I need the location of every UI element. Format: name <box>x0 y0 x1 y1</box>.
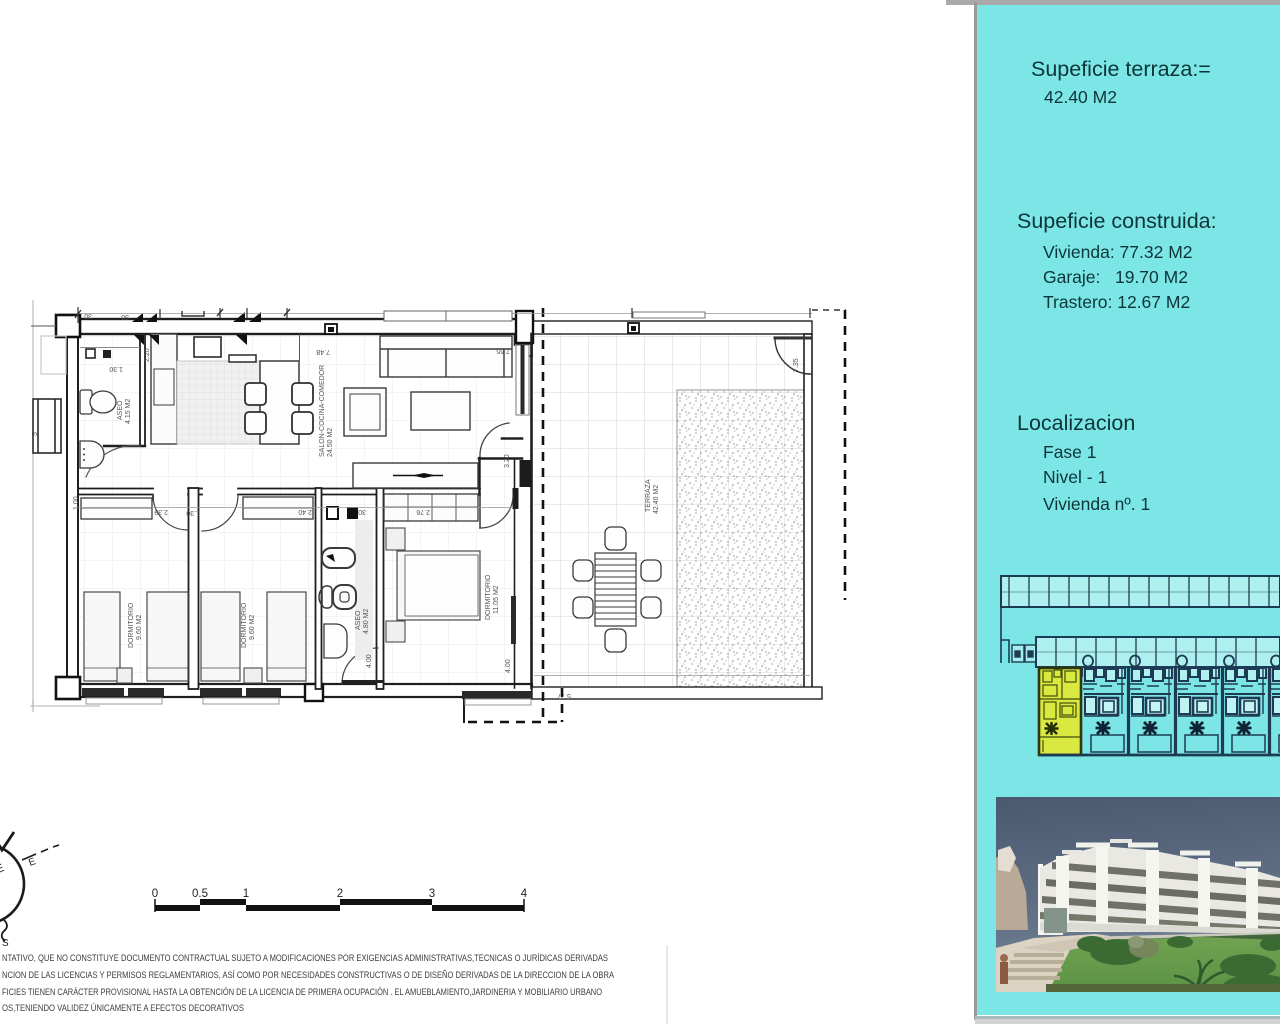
svg-text:2: 2 <box>337 888 343 900</box>
svg-text:7.65: 7.65 <box>496 347 510 354</box>
svg-text:42.40 M2: 42.40 M2 <box>653 485 660 514</box>
svg-text:2.40: 2.40 <box>298 508 312 515</box>
svg-text:4.80 M2: 4.80 M2 <box>363 609 370 634</box>
svg-text:Vivienda nº. 1: Vivienda nº. 1 <box>1043 494 1150 514</box>
svg-text:7.35: 7.35 <box>793 358 800 372</box>
svg-text:5: 5 <box>32 432 39 436</box>
svg-text:Fase 1: Fase 1 <box>1043 442 1097 462</box>
svg-text:DORMITORIO: DORMITORIO <box>128 602 135 648</box>
svg-text:11.05 M2: 11.05 M2 <box>493 585 500 614</box>
svg-text:Localizacion: Localizacion <box>1017 411 1135 435</box>
svg-text:1.00: 1.00 <box>73 496 80 510</box>
svg-text:9.60 M2: 9.60 M2 <box>249 615 256 640</box>
svg-text:DORMITORIO: DORMITORIO <box>241 602 248 648</box>
svg-text:Supeficie construida:: Supeficie construida: <box>1017 209 1217 233</box>
svg-text:FICIES TIENEN CARÁCTER PROVISI: FICIES TIENEN CARÁCTER PROVISIONAL HASTA… <box>2 987 602 998</box>
svg-text:5.77: 5.77 <box>557 692 571 699</box>
svg-text:Supeficie terraza:=: Supeficie terraza:= <box>1031 57 1211 81</box>
svg-text:4.15 M2: 4.15 M2 <box>125 399 132 424</box>
svg-text:42.40 M2: 42.40 M2 <box>1044 87 1117 107</box>
svg-text:Garaje: 19.70 M2: Garaje: 19.70 M2 <box>1043 267 1188 287</box>
svg-text:1: 1 <box>243 888 249 900</box>
svg-text:Trastero: 12.67 M2: Trastero: 12.67 M2 <box>1043 292 1190 312</box>
svg-text:ASEO: ASEO <box>117 400 124 420</box>
svg-text:2.20: 2.20 <box>144 348 151 362</box>
svg-text:24.50 M2: 24.50 M2 <box>327 428 334 457</box>
svg-text:OS,TENIENDO VALIDEZ ÚNICAMENTE: OS,TENIENDO VALIDEZ ÚNICAMENTE A EFECTOS… <box>2 1003 244 1014</box>
svg-text:2.76: 2.76 <box>416 508 430 515</box>
svg-text:TERRAZA: TERRAZA <box>645 479 652 512</box>
svg-text:9.60 M2: 9.60 M2 <box>136 615 143 640</box>
svg-text:3.20: 3.20 <box>504 454 511 468</box>
svg-text:ASEO: ASEO <box>355 610 362 630</box>
svg-text:SALON-COCINA-COMEDOR: SALON-COCINA-COMEDOR <box>319 365 326 457</box>
svg-text:30: 30 <box>121 313 129 320</box>
svg-text:NCION DE LAS LICENCIAS Y PERMI: NCION DE LAS LICENCIAS Y PERMISOS REGLAM… <box>2 970 614 981</box>
svg-text:S: S <box>2 938 9 949</box>
svg-text:4.00: 4.00 <box>366 654 373 668</box>
svg-text:4.00: 4.00 <box>505 659 512 673</box>
svg-text:1.30: 1.30 <box>109 365 123 372</box>
svg-text:30: 30 <box>358 508 366 515</box>
svg-text:Nivel - 1: Nivel - 1 <box>1043 467 1107 487</box>
svg-text:30: 30 <box>84 312 92 319</box>
svg-text:0.5: 0.5 <box>192 888 208 900</box>
svg-text:NTATIVO, QUE NO CONSTITUYE DOC: NTATIVO, QUE NO CONSTITUYE DOCUMENTO CON… <box>2 953 608 964</box>
svg-text:4: 4 <box>521 888 528 900</box>
svg-text:2.39: 2.39 <box>154 508 168 515</box>
svg-text:1.30: 1.30 <box>186 509 200 516</box>
svg-text:Vivienda: 77.32 M2: Vivienda: 77.32 M2 <box>1043 242 1193 262</box>
svg-text:3: 3 <box>429 888 435 900</box>
svg-text:7.48: 7.48 <box>316 348 330 355</box>
svg-text:DORMITORIO: DORMITORIO <box>485 574 492 620</box>
svg-text:0: 0 <box>152 888 158 900</box>
